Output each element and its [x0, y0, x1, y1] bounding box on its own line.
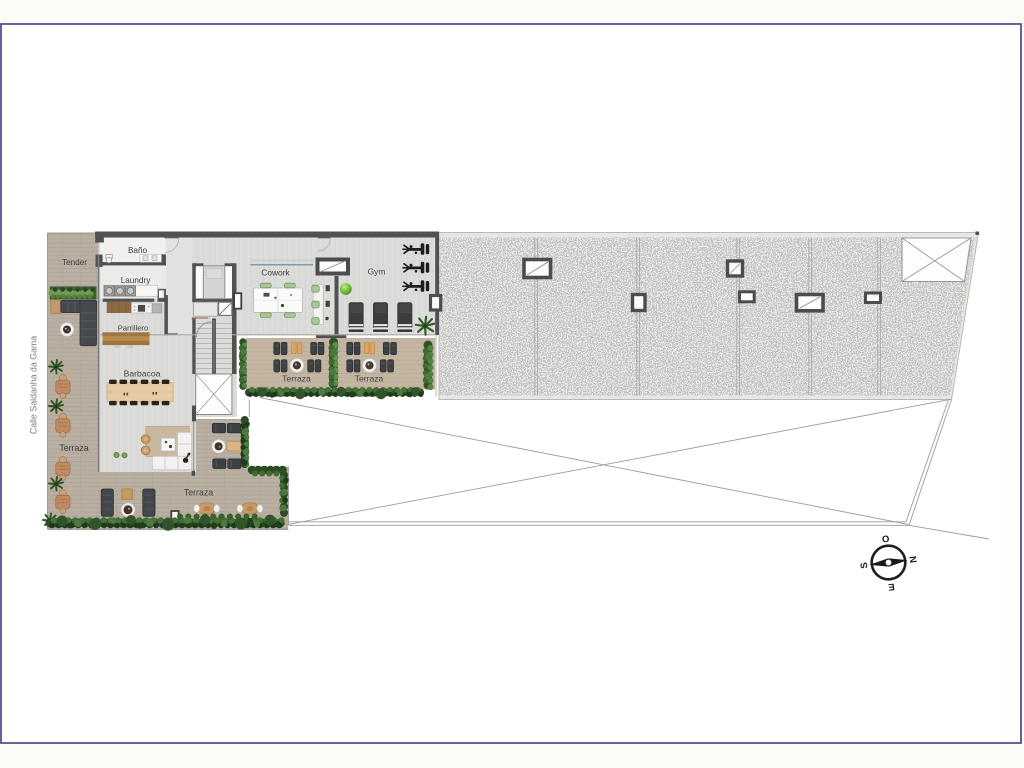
svg-text:Terraza: Terraza [59, 443, 88, 453]
svg-text:Baño: Baño [128, 246, 148, 255]
svg-text:S: S [859, 562, 871, 570]
svg-text:Terraza: Terraza [355, 374, 384, 384]
svg-text:Barbacoa: Barbacoa [124, 369, 161, 379]
svg-text:O: O [881, 534, 890, 546]
svg-text:E: E [888, 580, 896, 592]
svg-text:Gym: Gym [368, 267, 386, 277]
svg-text:Calle Saldanha da Gama: Calle Saldanha da Gama [29, 336, 39, 434]
svg-text:Terraza: Terraza [282, 374, 311, 384]
svg-text:Terraza: Terraza [184, 488, 213, 498]
svg-text:Parrillero: Parrillero [118, 324, 148, 333]
svg-text:Tender: Tender [62, 258, 87, 267]
svg-text:Laundry: Laundry [121, 276, 151, 285]
svg-text:Cowork: Cowork [261, 268, 290, 278]
